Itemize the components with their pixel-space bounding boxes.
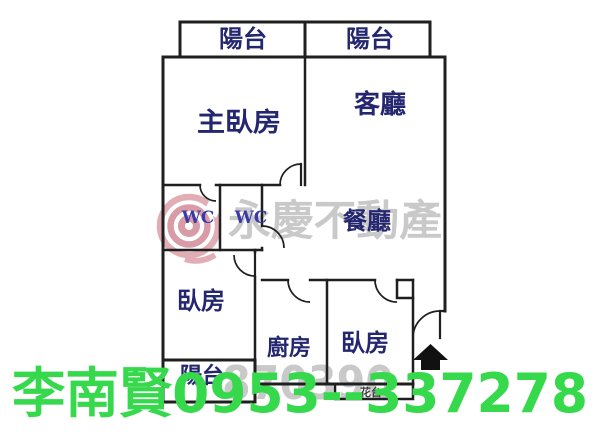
contact-overlay-text: 李南賢0953--337278 bbox=[12, 362, 588, 425]
room-label-dining-room: 餐廳 bbox=[343, 206, 391, 235]
room-label-balcony-top-left: 陽台 bbox=[219, 24, 267, 53]
room-label-living-room: 客廳 bbox=[354, 89, 406, 120]
room-label-wc-right: WC bbox=[234, 208, 268, 228]
floor-plan-svg: 永慶不動產 870390 bbox=[0, 0, 600, 443]
room-label-balcony-top-right: 陽台 bbox=[346, 24, 394, 53]
room-label-bedroom-left: 臥房 bbox=[177, 286, 225, 315]
room-label-bedroom-right: 臥房 bbox=[341, 328, 389, 357]
room-label-kitchen: 廚房 bbox=[267, 335, 311, 361]
room-label-master-bedroom: 主臥房 bbox=[197, 108, 281, 138]
floor-plan-image: 永慶不動產 870390 bbox=[0, 0, 600, 443]
room-label-wc-left: WC bbox=[181, 208, 215, 228]
door-leaves bbox=[255, 164, 445, 338]
